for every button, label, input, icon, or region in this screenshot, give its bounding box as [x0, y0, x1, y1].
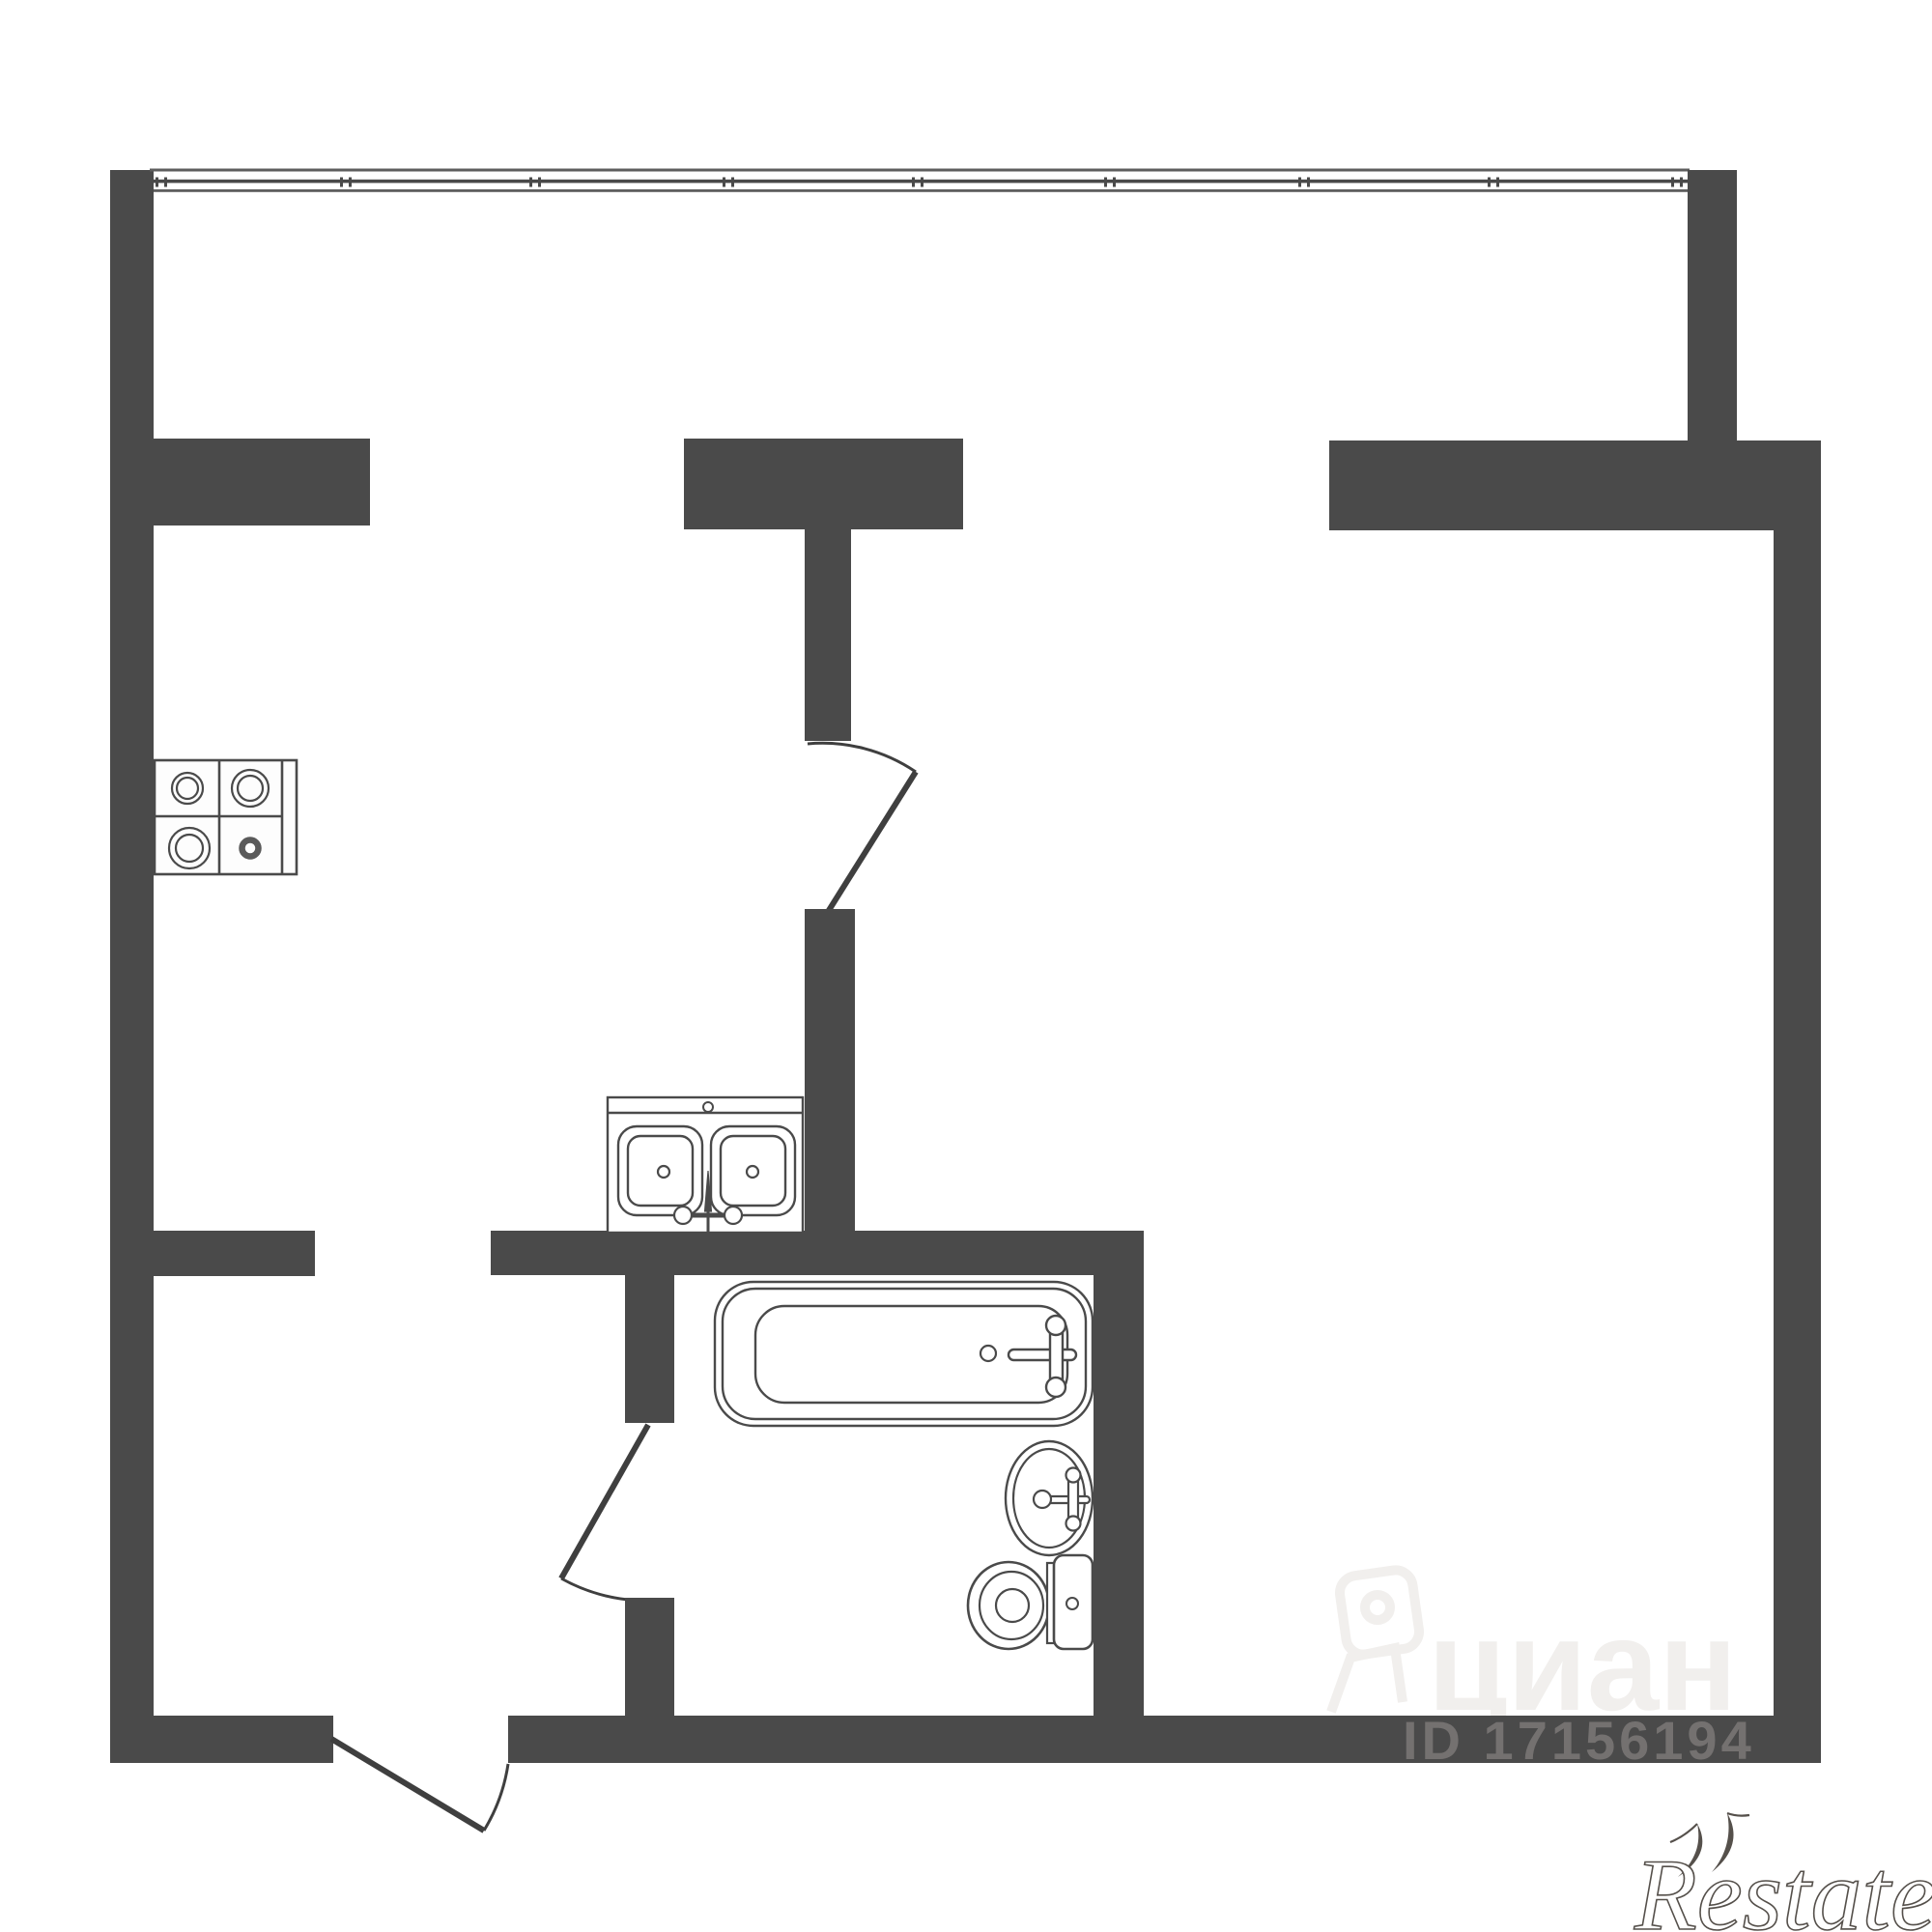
svg-text:Restate: Restate [1634, 1838, 1932, 1932]
svg-text:ID 17156194: ID 17156194 [1403, 1710, 1755, 1771]
